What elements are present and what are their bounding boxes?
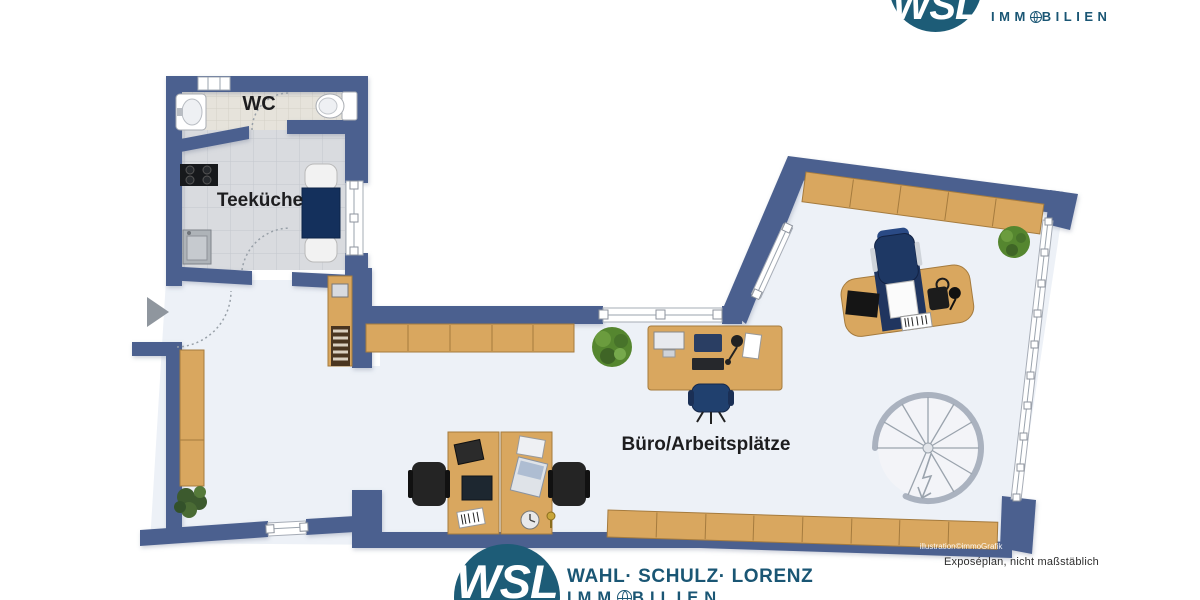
keyboard-icon bbox=[692, 358, 724, 370]
window-bottom-left bbox=[266, 521, 309, 536]
wsl-logo-circle-top: WSL bbox=[889, 0, 982, 32]
company-name-bottom: WAHL· SCHULZ· LORENZ bbox=[567, 566, 813, 588]
wall-partition bbox=[352, 268, 372, 368]
room-label-kitchen: Teeküche bbox=[217, 190, 303, 211]
room-label-office: Büro/Arbeitsplätze bbox=[622, 434, 791, 455]
kitchen-table bbox=[302, 164, 340, 262]
clock-icon bbox=[521, 511, 539, 529]
immobilien-post: BILIEN bbox=[1042, 9, 1112, 24]
wall-pillar bbox=[352, 490, 382, 548]
kitchen-sink-icon bbox=[183, 230, 211, 264]
wall-spur bbox=[132, 342, 166, 356]
notepad-icon bbox=[742, 333, 761, 359]
monitor-icon bbox=[462, 476, 492, 500]
sideboard-corridor bbox=[366, 324, 574, 352]
wall-corridor-top-left bbox=[372, 306, 603, 324]
wall-bottom-left-b bbox=[306, 516, 355, 535]
shelf-column bbox=[328, 276, 352, 366]
company-name-top: WAHL· SCHULZ· LORENZ bbox=[991, 0, 1180, 4]
wsl-monogram: WSL bbox=[893, 0, 979, 26]
floorplan-svg: WC Teeküche Büro/Arbeitsplätze illustrat… bbox=[0, 0, 1200, 600]
papers-icon bbox=[886, 281, 918, 319]
office-chair bbox=[548, 462, 590, 506]
immobilien-post: BILIEN bbox=[632, 589, 722, 600]
office-chair bbox=[408, 462, 450, 506]
window-vent-wc bbox=[198, 77, 230, 90]
window-corridor bbox=[599, 308, 722, 322]
stove-icon bbox=[180, 164, 218, 186]
wall-kitchen-top bbox=[166, 76, 368, 92]
plant-top-right bbox=[998, 226, 1030, 258]
paper-tray-icon bbox=[331, 326, 350, 366]
kitchen-chair bbox=[305, 164, 337, 190]
washbasin-icon bbox=[176, 94, 206, 130]
immobilien-pre: IMM bbox=[991, 9, 1030, 24]
immobilien-pre: IMM bbox=[567, 589, 617, 600]
desk-phone-icon bbox=[694, 334, 722, 352]
kitchen-chair bbox=[305, 236, 337, 262]
globe-icon bbox=[617, 590, 632, 600]
window-kitchen bbox=[346, 181, 363, 255]
illustration-credit: illustration©immoGrafik bbox=[920, 542, 1004, 551]
wsl-monogram: WSL bbox=[456, 558, 557, 600]
plant-middle bbox=[592, 327, 632, 367]
company-immobilien-top: IMMBILIEN bbox=[991, 9, 1111, 24]
printer-icon bbox=[332, 284, 348, 297]
company-immobilien-bottom: IMMBILIEN bbox=[567, 589, 722, 600]
disclaimer-text: Exposéplan, nicht maßstäblich bbox=[944, 556, 1099, 568]
room-label-wc: WC bbox=[242, 93, 275, 115]
laptop-icon bbox=[845, 290, 879, 317]
wardrobe-cabinet bbox=[180, 350, 204, 486]
floorplan-page: WC Teeküche Büro/Arbeitsplätze illustrat… bbox=[0, 0, 1200, 600]
papers-icon bbox=[517, 436, 546, 458]
toilet-icon bbox=[316, 92, 357, 120]
globe-icon bbox=[1030, 11, 1042, 23]
wall-wc-divider-right bbox=[287, 120, 345, 134]
